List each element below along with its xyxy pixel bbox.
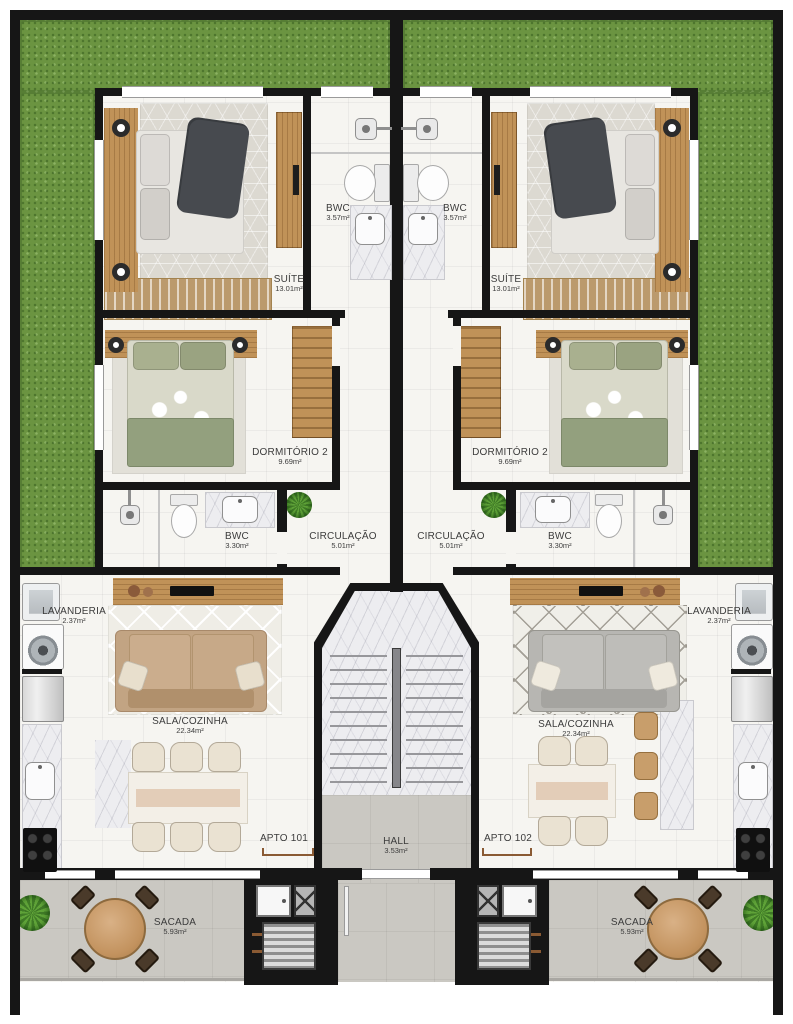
u2-table-runner: [536, 782, 608, 800]
stair-flight-left: [330, 655, 387, 787]
u1-sala-label: SALA/COZINHA 22.34m²: [150, 714, 230, 738]
u2-cooktop: [736, 828, 770, 872]
u2-sofa-back: [541, 689, 667, 708]
u2-sala-label: SALA/COZINHA 22.34m²: [536, 717, 616, 741]
u1-sala-area: 22.34m²: [176, 727, 204, 736]
u1-suite-wardrobe-handle: [293, 165, 299, 195]
building-entry-door: [362, 869, 430, 879]
u2-entry-label: APTO 102: [480, 832, 536, 846]
u1-dorm2-door-opening: [332, 326, 340, 366]
u1-suite-window: [122, 86, 263, 98]
u1-lavanderia-label: LAVANDERIA 2.37m²: [40, 603, 108, 629]
service-left-ac-unit: [262, 922, 316, 970]
u2-bwc2-shower-divider: [633, 490, 635, 567]
u2-sacada-area: 5.93m²: [620, 928, 643, 937]
u1-bwc-window: [321, 86, 373, 98]
u1-console-decor-1: [128, 585, 140, 597]
u2-dorm2-lamp-left: [545, 337, 561, 353]
u1-table-runner: [136, 789, 240, 807]
frame-wall-right: [773, 10, 783, 1015]
u2-sala-area: 22.34m²: [562, 730, 590, 739]
hall-east-wall: [471, 795, 479, 883]
u1-suite-lamp-bottom: [112, 263, 130, 281]
u1-dorm2-side-window: [94, 365, 104, 450]
u2-suite-label: SUÍTE 13.01m²: [478, 272, 534, 296]
u2-circulacao-label: CIRCULAÇÃO 5.01m²: [421, 529, 481, 553]
u2-entry-door-marker: [482, 848, 532, 856]
u1-bwc2-shower-arm: [128, 490, 131, 505]
u2-circulacao-plant: [481, 492, 507, 518]
u1-suite-pillow-1: [140, 134, 170, 186]
u1-suite-side-window: [94, 140, 104, 240]
u2-dorm2-door-opening: [453, 326, 461, 366]
u1-bwc2-door-opening: [277, 532, 287, 564]
service-right-shaft-icon: [477, 885, 499, 917]
grass-left-column: [20, 92, 95, 575]
u2-bwc-shower-divider: [402, 152, 482, 154]
u2-suite-area: 13.01m²: [492, 285, 520, 294]
u2-bwc2-toilet-bowl: [596, 504, 622, 538]
u1-cooktop: [23, 828, 57, 872]
u2-sofa-pillow-2: [647, 660, 679, 692]
u1-suite-south-wall: [95, 310, 345, 318]
u1-circulacao-area: 5.01m²: [331, 542, 354, 551]
u1-dorm2-blanket: [127, 418, 234, 467]
u1-suite-throw-blanket: [176, 116, 251, 220]
u2-dining-chair-3: [538, 816, 571, 846]
u1-dining-chair-1: [132, 742, 165, 772]
service-left-shaft-icon: [294, 885, 316, 917]
u2-suite-wardrobe-handle: [494, 165, 500, 195]
u2-dorm2-area: 9.69m²: [498, 458, 521, 467]
u1-bwc-toilet-bowl: [344, 165, 376, 201]
u2-washing-machine: [731, 624, 773, 670]
u2-bwc-shower-arm: [401, 127, 416, 130]
u2-bwc-toilet-bowl: [417, 165, 449, 201]
stair-flight-right: [406, 655, 463, 787]
u2-bar-stool-1: [634, 712, 658, 740]
u2-bwc-label: BWC 3.57m²: [433, 202, 477, 224]
u2-bwc-area: 3.57m²: [443, 214, 466, 223]
u2-suite-pillow-2: [625, 188, 655, 240]
u1-suite-pillow-2: [140, 188, 170, 240]
u1-entry-door-marker: [262, 848, 314, 856]
u2-lavanderia-area: 2.37m²: [707, 617, 730, 626]
u2-kitchen-sink: [738, 762, 768, 800]
u2-laundry-divider-wall: [731, 669, 771, 674]
u1-dorm2-label: DORMITÓRIO 2 9.69m²: [250, 446, 330, 468]
u2-bwc-window: [420, 86, 472, 98]
u1-sacada-label: SACADA 5.93m²: [145, 914, 205, 940]
u2-console-decor-1: [653, 585, 665, 597]
u2-dorm2-south-wall: [453, 482, 698, 490]
u1-washing-machine: [22, 624, 64, 670]
u1-entry-label: APTO 101: [256, 832, 312, 846]
u2-dorm2-pillow-1: [569, 342, 615, 370]
u2-bwc2-label: BWC 3.30m²: [532, 530, 588, 552]
u2-sofa: [528, 630, 680, 712]
service-right-pipe-1: [531, 933, 541, 936]
u1-bwc2-label: BWC 3.30m²: [209, 530, 265, 552]
u2-entry-text: APTO 102: [484, 833, 532, 845]
u1-laundry-divider-wall: [22, 669, 62, 674]
frame-wall-left: [10, 10, 20, 1015]
u1-dining-chair-6: [208, 822, 241, 852]
u2-bwc-shower-head-icon: [416, 118, 438, 140]
hall-label: HALL 3.53m²: [366, 833, 426, 859]
u1-suite-lamp-top: [112, 119, 130, 137]
u1-bwc-area: 3.57m²: [326, 214, 349, 223]
u1-dorm2-lamp-left: [108, 337, 124, 353]
u1-bwc-shower-arm: [377, 127, 392, 130]
u2-lavanderia-label: LAVANDERIA 2.37m²: [685, 603, 753, 629]
u1-bwc2-shower-head-icon: [120, 505, 140, 525]
u2-console-decor-2: [640, 587, 650, 597]
u2-dorm2-blanket: [561, 418, 668, 467]
u2-suite-south-wall: [448, 310, 698, 318]
u2-circulacao-area: 5.01m²: [439, 542, 462, 551]
u1-dorm2-south-wall: [95, 482, 340, 490]
u1-sacada-edge: [20, 978, 244, 981]
u1-tv: [170, 586, 214, 596]
grass-right-column: [698, 92, 773, 575]
u1-bwc-label: BWC 3.57m²: [316, 202, 360, 224]
service-left-door: [256, 885, 291, 917]
u1-dining-chair-5: [170, 822, 203, 852]
service-left-pipe-1: [252, 933, 262, 936]
u1-sacada-area: 5.93m²: [163, 928, 186, 937]
u2-tv: [579, 586, 623, 596]
u2-sacada-edge: [549, 978, 773, 981]
u2-bar-stool-3: [634, 792, 658, 820]
u1-lavanderia-area: 2.37m²: [62, 617, 85, 626]
u1-kitchen-floor-patch: [95, 740, 131, 828]
u1-sala-north-wall: [20, 567, 340, 575]
u2-dining-chair-4: [575, 816, 608, 846]
u1-sacada-table: [84, 898, 146, 960]
u2-bwc2-shower-head-icon: [653, 505, 673, 525]
service-right-pipe-2: [531, 950, 541, 953]
u1-bwc2-shower-divider: [158, 490, 160, 567]
u2-breakfast-bar: [660, 700, 694, 830]
u1-bwc-shower-divider: [311, 152, 391, 154]
u1-dorm2-lamp-right: [232, 337, 248, 353]
entry-walkway-floor: [338, 883, 455, 982]
u1-dining-chair-4: [132, 822, 165, 852]
service-right-door: [502, 885, 537, 917]
u1-bwc2-area: 3.30m²: [225, 542, 248, 551]
u1-bwc-shower-head-icon: [355, 118, 377, 140]
u2-suite-side-window: [689, 140, 699, 240]
u1-kitchen-sink: [25, 762, 55, 800]
u2-suite-window: [530, 86, 671, 98]
u2-suite-lamp-top: [663, 119, 681, 137]
u1-sofa: [115, 630, 267, 712]
u1-bwc-toilet-tank: [374, 164, 390, 202]
u2-bwc2-sink: [535, 496, 571, 523]
u2-suite-throw-blanket: [543, 116, 618, 220]
center-party-wall: [390, 20, 403, 592]
u2-suite-pillow-1: [625, 134, 655, 186]
u2-bwc2-area: 3.30m²: [548, 542, 571, 551]
floor-plan: SUÍTE 13.01m² BWC 3.57m² DORMITÓRIO 2 9.…: [0, 0, 793, 1024]
u2-dorm2-pillow-2: [616, 342, 662, 370]
u2-bar-stool-2: [634, 752, 658, 780]
u2-sala-north-wall: [453, 567, 773, 575]
u2-dorm2-label: DORMITÓRIO 2 9.69m²: [470, 446, 550, 468]
u2-bwc2-door-opening: [506, 532, 516, 564]
hall-area: 3.53m²: [384, 847, 407, 856]
u1-refrigerator: [22, 676, 64, 722]
u2-sacada-label: SACADA 5.93m²: [602, 914, 662, 940]
u1-bwc2-toilet-bowl: [171, 504, 197, 538]
u1-suite-area: 13.01m²: [275, 285, 303, 294]
u2-dorm2-lamp-right: [669, 337, 685, 353]
service-right-ac-unit: [477, 922, 531, 970]
u2-sacada-slider-door: [533, 870, 678, 879]
u1-dorm2-pillow-1: [133, 342, 179, 370]
u1-dining-chair-3: [208, 742, 241, 772]
u2-dorm2-wardrobe: [455, 326, 501, 438]
u1-dorm2-area: 9.69m²: [278, 458, 301, 467]
frame-wall-top: [10, 10, 783, 20]
u1-sofa-pillow-2: [234, 660, 266, 692]
hall-west-wall: [314, 795, 322, 883]
u1-entry-text: APTO 101: [260, 833, 308, 845]
u2-suite-lamp-bottom: [663, 263, 681, 281]
u1-console-decor-2: [143, 587, 153, 597]
u2-dorm2-side-window: [689, 365, 699, 450]
u1-circulacao-plant: [286, 492, 312, 518]
u1-dorm2-pillow-2: [180, 342, 226, 370]
u1-suite-label: SUÍTE 13.01m²: [261, 272, 317, 296]
u2-bwc2-shower-arm: [662, 490, 665, 505]
u1-bwc2-sink: [222, 496, 258, 523]
service-left-pipe-2: [252, 950, 262, 953]
grass-top-left: [20, 20, 390, 92]
stair-center-rail: [392, 648, 401, 788]
u2-refrigerator: [731, 676, 773, 722]
u1-sacada-slider-door: [115, 870, 260, 879]
u1-circulacao-label: CIRCULAÇÃO 5.01m²: [313, 529, 373, 553]
entry-door-leaf: [344, 886, 349, 936]
u1-sofa-back: [128, 689, 254, 708]
grass-top-right: [403, 20, 773, 92]
u1-dining-chair-2: [170, 742, 203, 772]
